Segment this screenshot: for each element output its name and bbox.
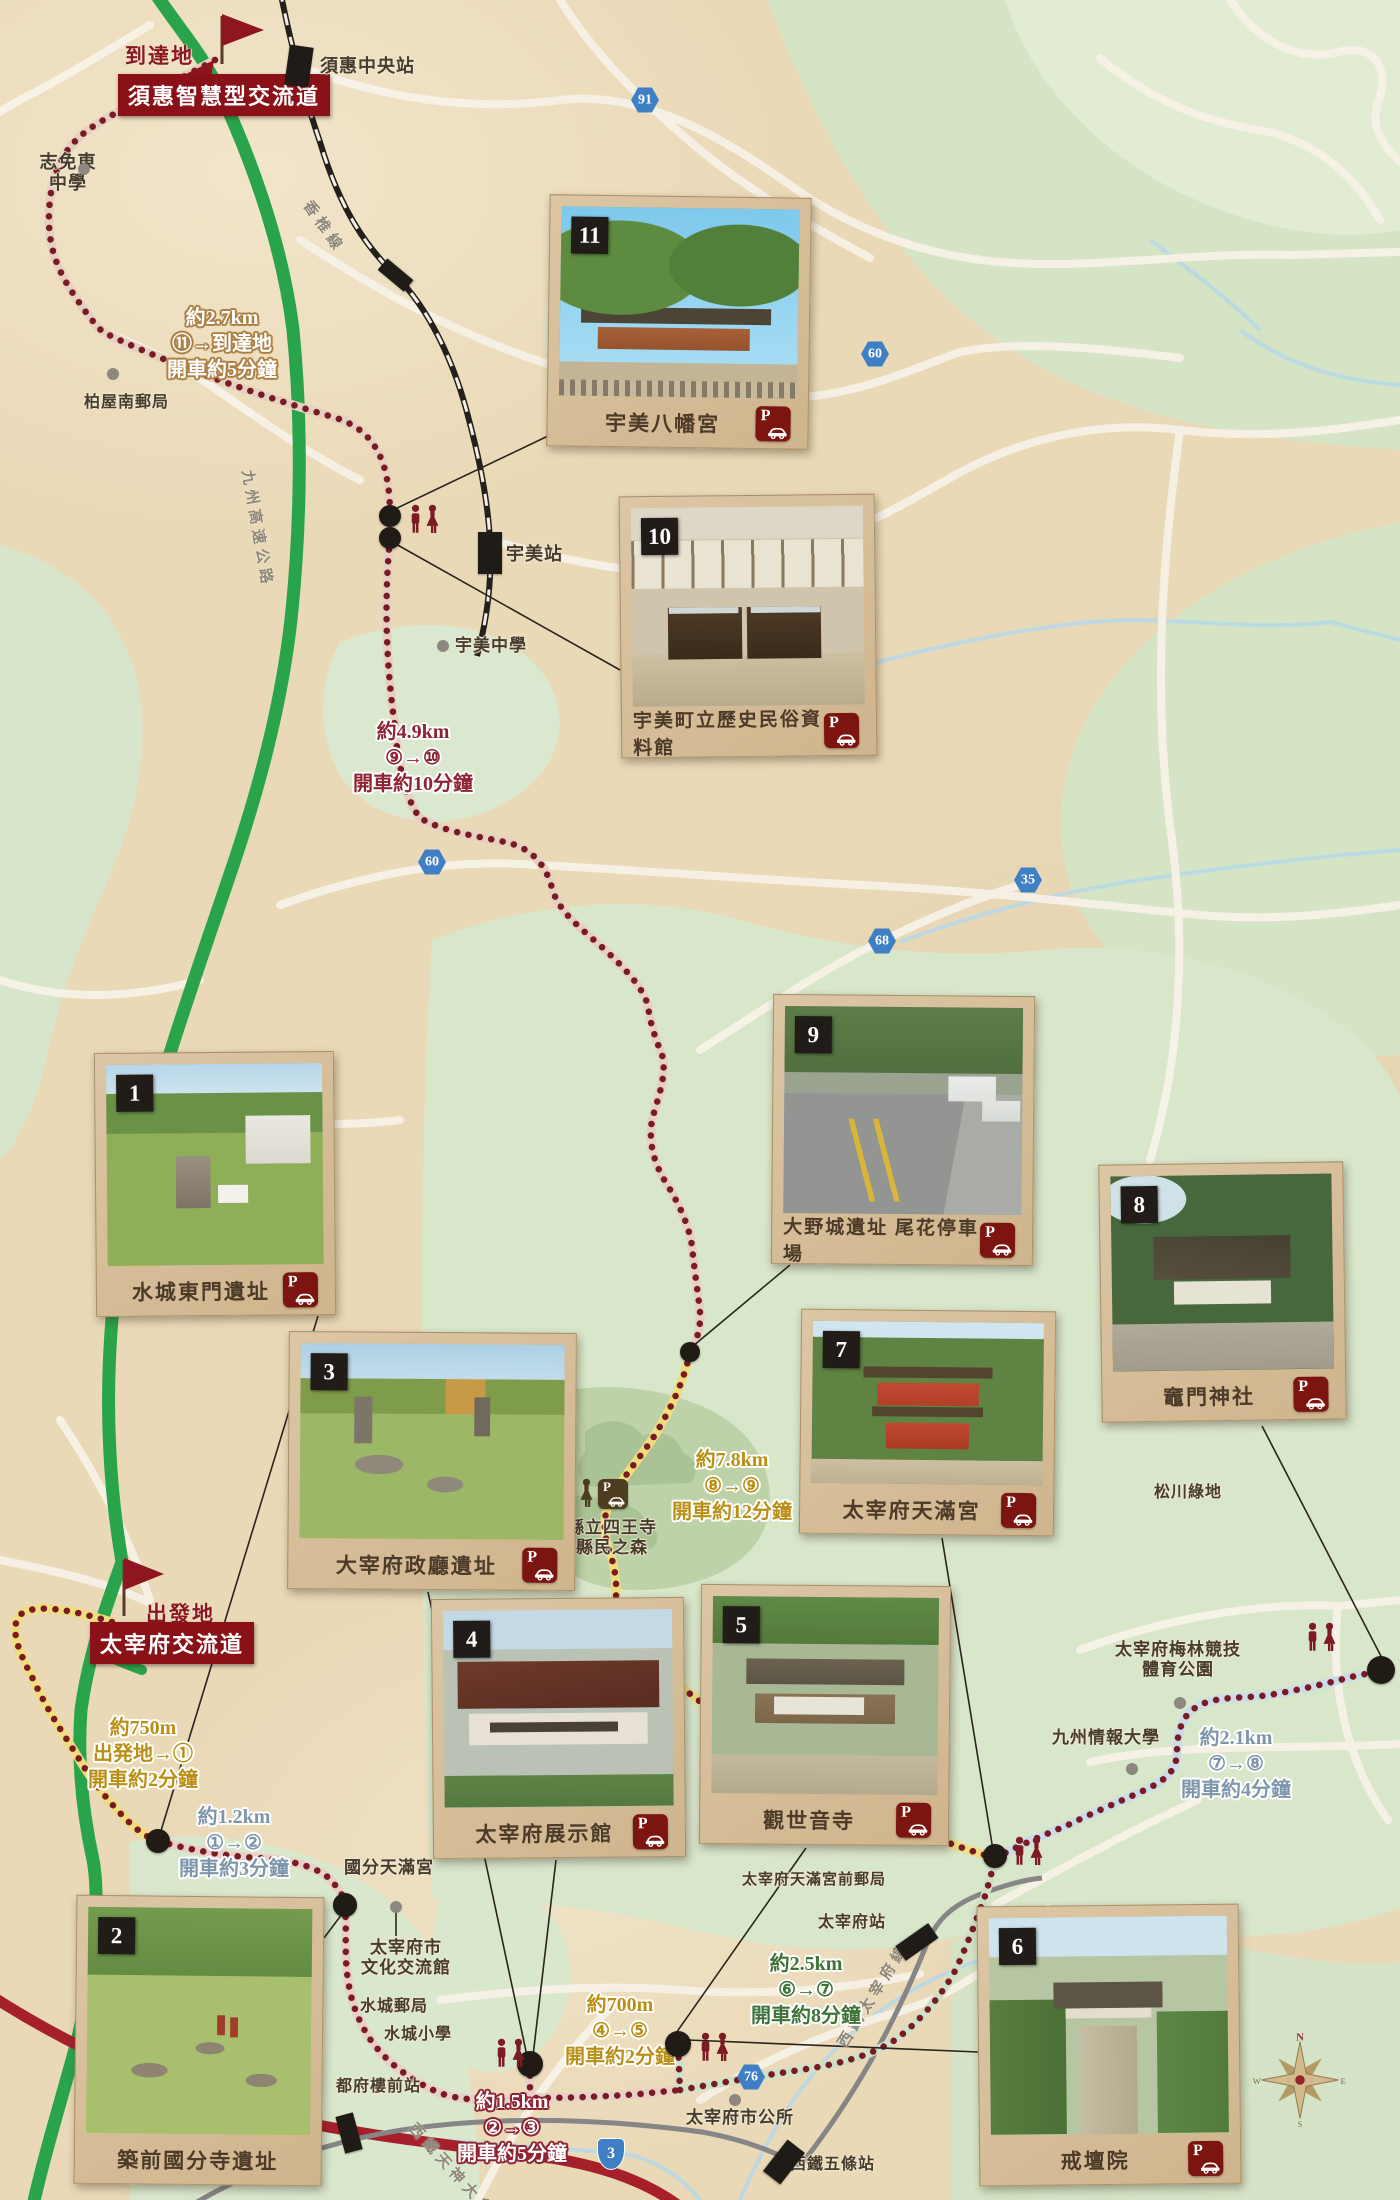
card-title: 大宰府政廳遺址 bbox=[336, 1549, 527, 1580]
photo-card-5: 5觀世音寺P bbox=[699, 1584, 951, 1846]
route-note: 約2.1km⑦→⑧開車約4分鐘 bbox=[1181, 1725, 1291, 1803]
poi-label: 西鐵五條站 bbox=[790, 2156, 875, 2174]
card-number-badge: 5 bbox=[723, 1606, 760, 1643]
route-note: 約700m④→⑤開車約2分鐘 bbox=[565, 1992, 675, 2070]
route-note: 約7.8km⑧→⑨開車約12分鐘 bbox=[672, 1447, 792, 1525]
spot-marker bbox=[665, 2031, 691, 2057]
route-note: 約1.5km②→③開車約5分鐘 bbox=[457, 2089, 567, 2167]
restroom-icon bbox=[696, 2032, 732, 2069]
parking-icon: P bbox=[755, 406, 790, 441]
route-note: 約1.2km①→②開車約3分鐘 bbox=[179, 1804, 289, 1882]
poi-dot bbox=[729, 2094, 741, 2106]
card-photo: 11 bbox=[559, 206, 800, 398]
spot-marker bbox=[379, 527, 401, 549]
restroom-icon bbox=[492, 2038, 528, 2075]
card-photo: 8 bbox=[1110, 1173, 1334, 1371]
card-number-badge: 1 bbox=[116, 1075, 153, 1112]
card-caption: 太宰府天滿宮P bbox=[811, 1483, 1043, 1537]
card-number-badge: 11 bbox=[571, 216, 609, 254]
card-title: 築前國分寺遺址 bbox=[117, 2144, 278, 2176]
photo-card-11: 11宇美八幡宮P bbox=[546, 194, 811, 450]
photo-card-1: 1水城東門遺址P bbox=[94, 1051, 336, 1317]
card-caption: 水城東門遺址P bbox=[108, 1264, 324, 1318]
spot-marker bbox=[1367, 1656, 1395, 1684]
poi-label: 太宰府天滿宮前郵局 bbox=[742, 1872, 886, 1889]
card-photo: 3 bbox=[299, 1343, 564, 1540]
card-title: 水城東門遺址 bbox=[132, 1275, 300, 1306]
card-number-badge: 8 bbox=[1121, 1186, 1159, 1224]
destination-label: 到達地 bbox=[125, 40, 194, 70]
parking-icon: P bbox=[1001, 1493, 1036, 1528]
poi-dot bbox=[1174, 1697, 1186, 1709]
card-number-badge: 9 bbox=[795, 1016, 832, 1053]
card-caption: 觀世音寺P bbox=[711, 1793, 937, 1847]
parking-icon: P bbox=[522, 1548, 557, 1583]
card-caption: 大野城遺址 尾花停車場P bbox=[783, 1213, 1021, 1267]
poi-label: 太宰府梅林競技體育公園 bbox=[1108, 1640, 1248, 1679]
card-caption: 竈門神社P bbox=[1113, 1368, 1335, 1423]
restroom-icon bbox=[1303, 1622, 1339, 1659]
poi-dot bbox=[390, 1901, 402, 1913]
parking-icon: P bbox=[1293, 1377, 1328, 1412]
card-caption: 太宰府展示館P bbox=[445, 1806, 674, 1860]
card-caption: 戒壇院P bbox=[991, 2133, 1230, 2187]
card-photo: 7 bbox=[811, 1321, 1044, 1485]
parking-icon: P bbox=[283, 1272, 318, 1307]
compass-south-letter: S bbox=[1298, 2119, 1303, 2128]
card-number-badge: 3 bbox=[310, 1353, 347, 1390]
route-note: 約4.9km⑨→⑩開車約10分鐘 bbox=[353, 719, 473, 797]
poi-label: 柏屋南郵局 bbox=[84, 394, 169, 412]
card-title: 宇美八幡宮 bbox=[605, 407, 750, 439]
card-number-badge: 2 bbox=[98, 1917, 135, 1954]
spot-marker bbox=[333, 1893, 357, 1917]
poi-label: 都府樓前站 bbox=[336, 2078, 421, 2096]
card-photo: 6 bbox=[989, 1916, 1229, 2135]
poi-label: 水城小學 bbox=[384, 2026, 452, 2044]
card-caption: 築前國分寺遺址 bbox=[85, 2133, 310, 2187]
route-note: 約750m出発地→①開車約2分鐘 bbox=[88, 1715, 198, 1793]
card-title: 觀世音寺 bbox=[763, 1804, 885, 1835]
compass-west-letter: W bbox=[1253, 2076, 1262, 2086]
card-title: 戒壇院 bbox=[1061, 2144, 1160, 2175]
poi-label: 松川綠地 bbox=[1154, 1484, 1222, 1502]
route-note: 約2.5km⑥→⑦開車約8分鐘 bbox=[751, 1951, 861, 2029]
poi-label: 太宰府站 bbox=[818, 1914, 886, 1932]
spot-marker bbox=[680, 1342, 700, 1362]
poi-label: 宇美中學 bbox=[455, 636, 527, 656]
card-caption: 宇美町立歷史民俗資料館P bbox=[633, 705, 866, 759]
restroom-icon bbox=[1010, 1836, 1046, 1873]
parking-icon: P bbox=[896, 1803, 931, 1838]
card-photo: 4 bbox=[443, 1609, 674, 1808]
poi-label: 國分天滿宮 bbox=[344, 1858, 434, 1878]
photo-card-9: 9大野城遺址 尾花停車場P bbox=[771, 994, 1035, 1266]
card-photo: 2 bbox=[86, 1907, 312, 2135]
card-caption: 大宰府政廳遺址P bbox=[299, 1538, 563, 1592]
card-photo: 1 bbox=[106, 1063, 324, 1266]
photo-card-3: 3大宰府政廳遺址P bbox=[287, 1331, 577, 1591]
card-photo: 5 bbox=[711, 1596, 939, 1795]
parking-icon: P bbox=[1188, 2141, 1223, 2176]
station-marker bbox=[478, 532, 502, 574]
poi-label: 太宰府市公所 bbox=[686, 2108, 794, 2128]
restroom-icon bbox=[406, 504, 442, 541]
poi-label: 志免東中學 bbox=[28, 152, 108, 193]
route-note: 約2.7km⑪→到達地開車約5分鐘 bbox=[167, 305, 277, 383]
poi-label: 宇美站 bbox=[506, 544, 563, 565]
poi-label: 水城郵局 bbox=[360, 1998, 428, 2016]
compass-north-letter: N bbox=[1296, 2033, 1304, 2044]
photo-card-6: 6戒壇院P bbox=[977, 1904, 1242, 2187]
compass-east-letter: E bbox=[1341, 2076, 1346, 2086]
poi-dot bbox=[1126, 1763, 1138, 1775]
parking-icon: P bbox=[824, 713, 859, 748]
parking-icon: P bbox=[598, 1479, 628, 1509]
poi-dot bbox=[107, 368, 119, 380]
card-number-badge: 7 bbox=[823, 1331, 860, 1368]
card-title: 太宰府天滿宮 bbox=[842, 1494, 1010, 1526]
card-title: 竈門神社 bbox=[1163, 1380, 1285, 1412]
spot-marker bbox=[983, 1844, 1007, 1868]
poi-label: 須惠中央站 bbox=[320, 56, 415, 77]
photo-card-4: 4太宰府展示館P bbox=[431, 1597, 686, 1859]
card-photo: 10 bbox=[631, 506, 865, 707]
photo-card-10: 10宇美町立歷史民俗資料館P bbox=[619, 494, 878, 759]
compass-rose-icon: N E S W bbox=[1252, 2032, 1348, 2128]
card-caption: 宇美八幡宮P bbox=[558, 395, 797, 450]
card-number-badge: 6 bbox=[999, 1928, 1036, 1965]
card-title: 太宰府展示館 bbox=[475, 1817, 643, 1848]
card-number-badge: 10 bbox=[641, 518, 678, 555]
photo-card-7: 7太宰府天滿宮P bbox=[799, 1309, 1056, 1537]
card-photo: 9 bbox=[783, 1006, 1023, 1215]
photo-card-2: 2築前國分寺遺址 bbox=[73, 1895, 324, 2187]
poi-label: 九州情報大學 bbox=[1052, 1728, 1160, 1748]
poi-dot bbox=[437, 640, 449, 652]
photo-card-8: 8竈門神社P bbox=[1098, 1161, 1347, 1422]
spot-marker bbox=[379, 505, 401, 527]
parking-icon: P bbox=[980, 1223, 1015, 1258]
card-number-badge: 4 bbox=[453, 1621, 490, 1658]
start-interchange-box: 太宰府交流道 bbox=[90, 1622, 254, 1664]
tourist-route-map: 到達地 須惠智慧型交流道 出發地 太宰府交流道 N E S W 須惠中央站志免東… bbox=[0, 0, 1400, 2200]
poi-label: 太宰府市文化交流館 bbox=[356, 1938, 456, 1977]
parking-icon: P bbox=[633, 1814, 668, 1849]
spot-marker bbox=[146, 1829, 170, 1853]
poi-dot bbox=[78, 163, 90, 175]
